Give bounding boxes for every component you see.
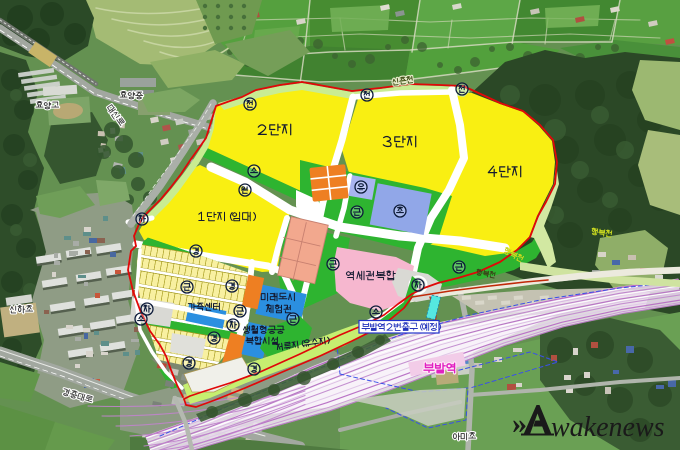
svg-text:wakenews: wakenews [551,412,665,443]
